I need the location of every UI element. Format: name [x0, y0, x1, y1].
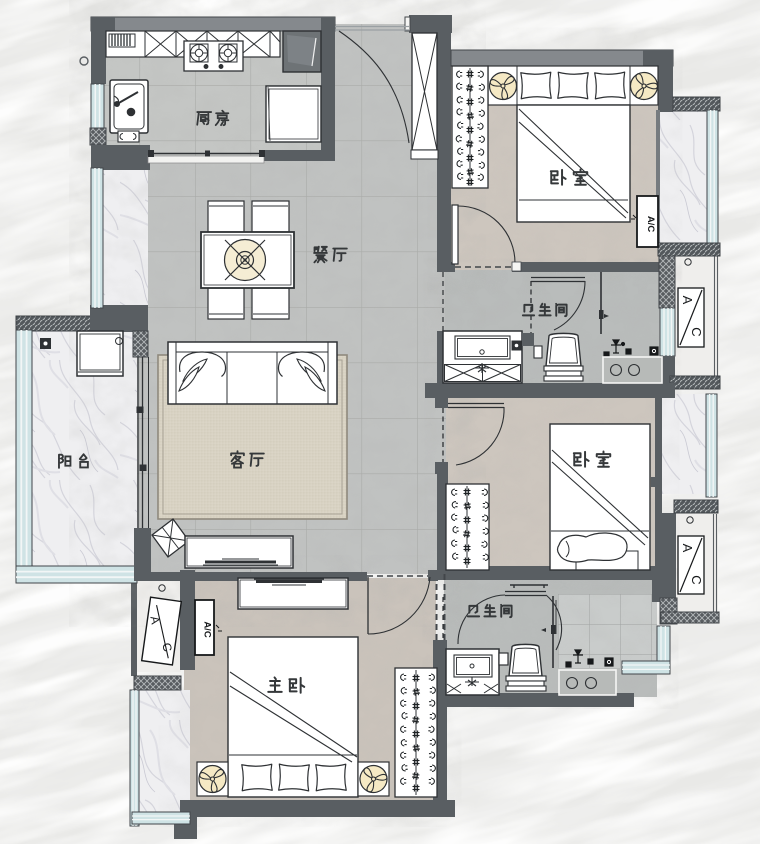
svg-text:C: C	[689, 327, 704, 336]
svg-text:A/C: A/C	[645, 216, 656, 233]
svg-text:A: A	[680, 296, 695, 305]
svg-text:A/C: A/C	[202, 621, 213, 638]
svg-text:C: C	[689, 575, 704, 584]
svg-text:A: A	[680, 544, 695, 553]
